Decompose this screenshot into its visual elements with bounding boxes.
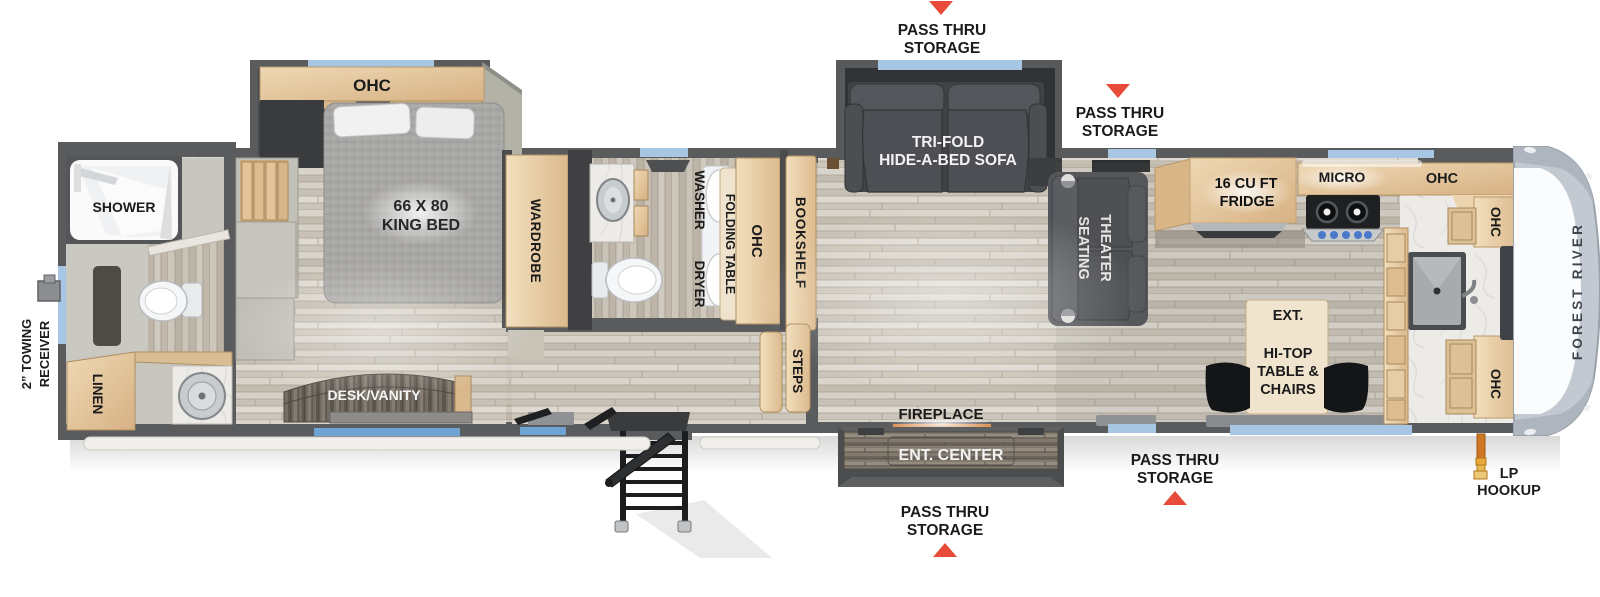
svg-text:STORAGE: STORAGE [907, 522, 983, 539]
svg-text:FOREST RIVER: FOREST RIVER [1570, 222, 1585, 360]
svg-text:OHC: OHC [748, 224, 765, 258]
svg-text:HI-TOP: HI-TOP [1264, 346, 1313, 362]
svg-text:WASHER: WASHER [692, 170, 707, 230]
svg-text:LINEN: LINEN [90, 374, 105, 415]
svg-text:EXT.: EXT. [1273, 308, 1304, 324]
svg-text:SHOWER: SHOWER [93, 199, 156, 215]
svg-text:OHC: OHC [1488, 369, 1503, 399]
svg-text:FRIDGE: FRIDGE [1220, 194, 1275, 210]
svg-text:OHC: OHC [1426, 171, 1459, 187]
svg-text:FOLDING TABLE: FOLDING TABLE [723, 194, 737, 294]
svg-text:OHC: OHC [1488, 207, 1503, 237]
svg-text:OHC: OHC [353, 76, 391, 95]
svg-text:TABLE &: TABLE & [1257, 364, 1319, 380]
svg-text:STORAGE: STORAGE [1137, 470, 1213, 487]
svg-text:FIREPLACE: FIREPLACE [898, 406, 983, 423]
svg-text:KING BED: KING BED [382, 217, 460, 234]
svg-text:PASS THRU: PASS THRU [901, 504, 989, 521]
svg-text:PASS THRU: PASS THRU [898, 22, 986, 39]
svg-text:2” TOWING: 2” TOWING [19, 319, 34, 390]
svg-text:CHAIRS: CHAIRS [1260, 382, 1316, 398]
svg-text:HIDE-A-BED SOFA: HIDE-A-BED SOFA [879, 152, 1017, 169]
svg-text:STORAGE: STORAGE [904, 40, 980, 57]
svg-text:RECEIVER: RECEIVER [37, 320, 52, 387]
svg-text:PASS THRU: PASS THRU [1131, 452, 1219, 469]
svg-text:16 CU FT: 16 CU FT [1215, 176, 1278, 192]
svg-text:66 X 80: 66 X 80 [393, 198, 448, 215]
svg-text:HOOKUP: HOOKUP [1477, 483, 1541, 499]
svg-text:MICRO: MICRO [1319, 169, 1366, 185]
svg-text:ENT. CENTER: ENT. CENTER [899, 447, 1004, 464]
svg-text:PASS THRU: PASS THRU [1076, 105, 1164, 122]
svg-text:TRI-FOLD: TRI-FOLD [912, 134, 984, 151]
svg-text:STORAGE: STORAGE [1082, 123, 1158, 140]
svg-text:WARDROBE: WARDROBE [528, 199, 543, 283]
svg-text:DRYER: DRYER [692, 261, 707, 308]
svg-text:LP: LP [1500, 466, 1519, 482]
